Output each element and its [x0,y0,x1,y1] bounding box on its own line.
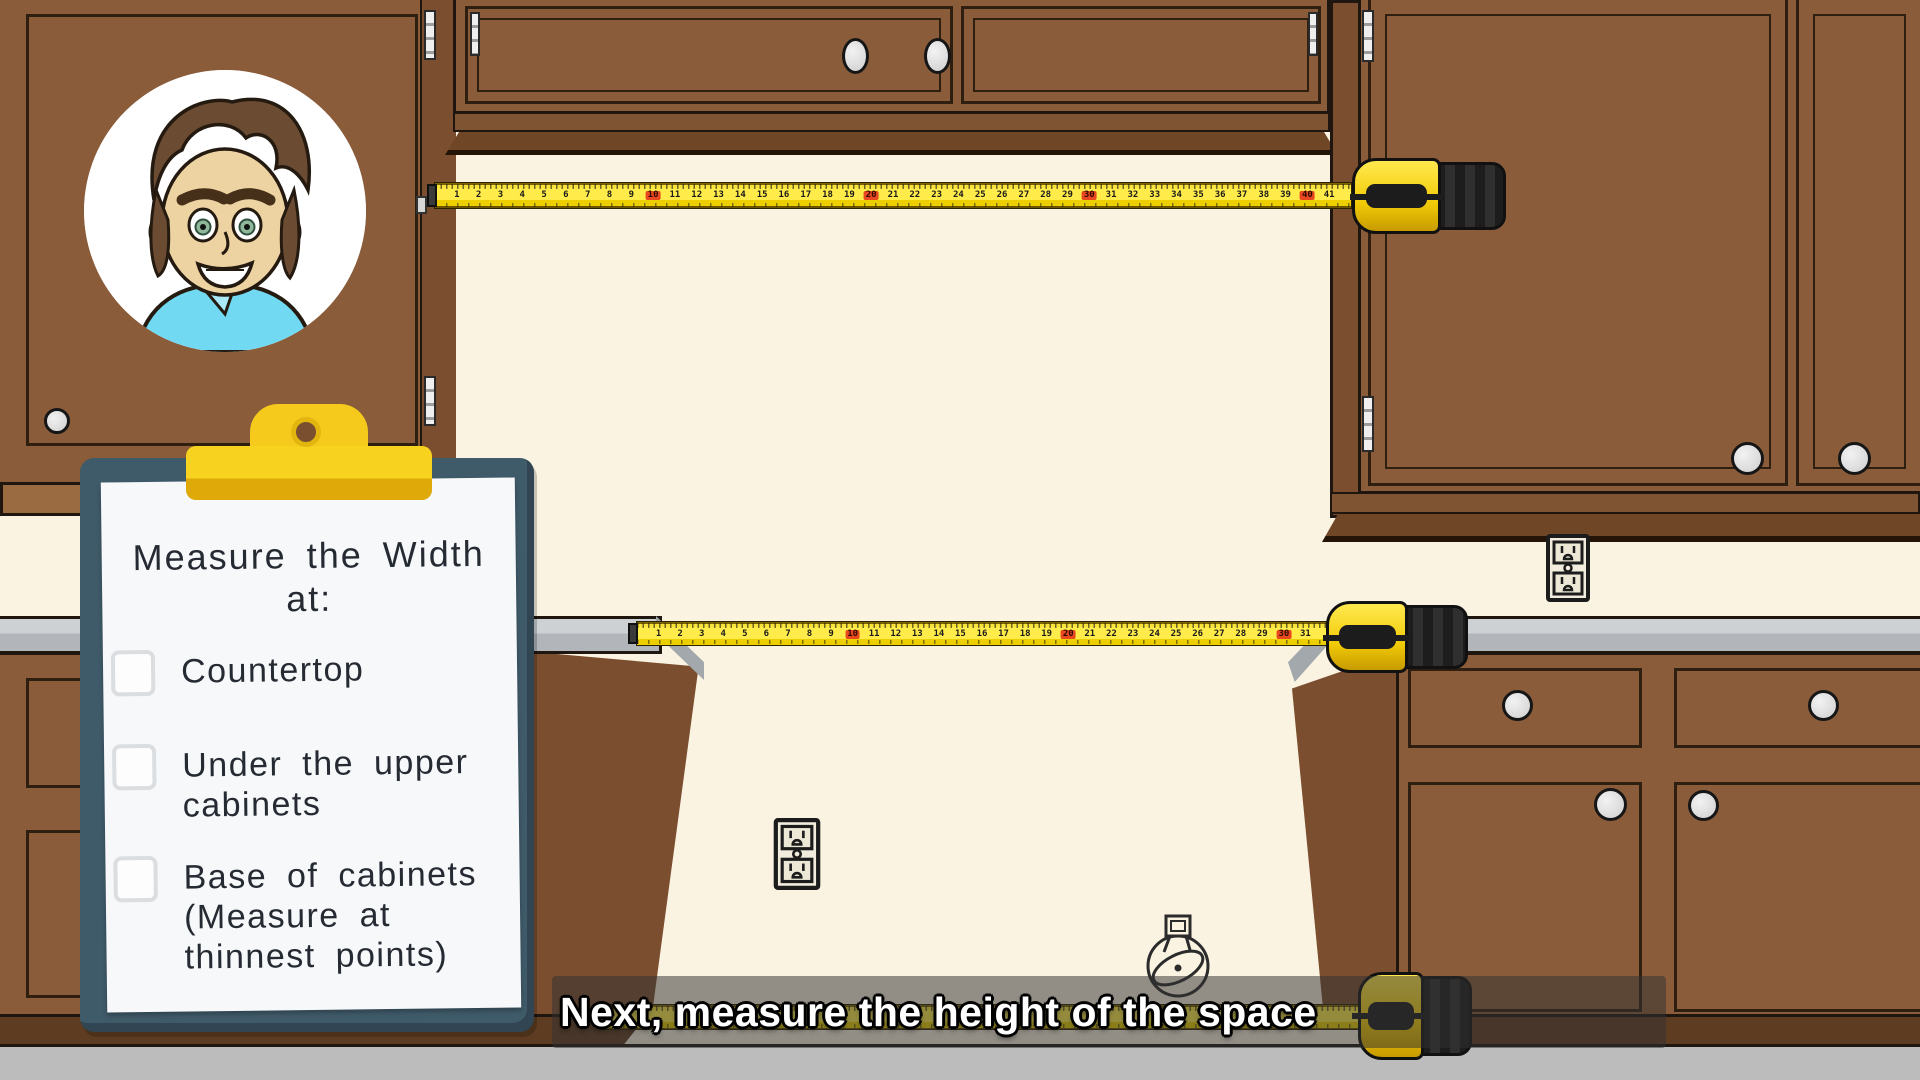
tape-hook [427,184,437,207]
tape-number: 1 [454,191,459,200]
tape-number: 33 [1149,191,1160,200]
kitchen-scene: 1234567891011121314151617181920212223242… [0,0,1920,1080]
tape-number: 34 [1171,191,1182,200]
tape-number: 19 [1041,630,1052,639]
tape-number: 19 [844,191,855,200]
checkbox-under-upper-cabinets[interactable] [112,744,157,791]
tape-number: 9 [828,630,833,639]
base-cabinet-right-drawer [1674,668,1920,748]
tape-measure-body-middle [1326,601,1468,673]
tape-number: 1 [656,630,661,639]
tape-number: 41 [1324,191,1335,200]
tape-hook [628,623,638,644]
tape-number: 22 [909,191,920,200]
tape-number: 10 [646,191,661,200]
hinge-icon [424,376,436,426]
tape-number: 25 [975,191,986,200]
tape-number: 15 [757,191,768,200]
cabinet-knob [1838,442,1871,475]
tape-number: 2 [677,630,682,639]
tape-body-clip [1339,625,1396,648]
door-inner-panel [973,18,1309,92]
door-inner-panel [1813,14,1906,469]
tape-number: 4 [520,191,525,200]
cabinet-knob [1502,690,1533,721]
tape-number: 16 [977,630,988,639]
upper-cabinet-right-door-right [1796,0,1920,486]
power-outlet-icon [1546,534,1590,602]
tape-number: 31 [1300,630,1311,639]
tape-number: 4 [721,630,726,639]
door-inner-panel [477,18,941,92]
clipboard-clip-hole [291,417,321,447]
tape-number: 17 [800,191,811,200]
upper-cabinet-right-door-left [1368,0,1788,486]
upper-cabinet-right-molding [1322,514,1920,542]
checkbox-base-of-cabinets[interactable] [113,856,158,903]
measuring-tape-middle: 1234567891011121314151617181920212223242… [636,621,1328,646]
tape-number: 5 [742,630,747,639]
tape-number: 6 [764,630,769,639]
tape-number: 24 [953,191,964,200]
tape-number: 3 [498,191,503,200]
tape-number: 13 [713,191,724,200]
tape-number: 7 [585,191,590,200]
checklist-item-label: Countertop [181,647,365,691]
tape-number: 5 [541,191,546,200]
tape-number: 29 [1257,630,1268,639]
tape-number: 12 [691,191,702,200]
tape-number: 32 [1127,191,1138,200]
clipboard-clip-bar [186,446,432,500]
tape-number: 21 [888,191,899,200]
tape-number: 26 [1192,630,1203,639]
cabinet-knob [1594,788,1627,821]
subtitle-text: Next, measure the height of the space [560,989,1317,1036]
checklist-item: Under the upper cabinets [112,740,469,827]
tape-number: 28 [1235,630,1246,639]
checklist-item: Countertop [111,647,365,696]
tape-number: 13 [912,630,923,639]
subtitle-bar: Next, measure the height of the space [552,976,1666,1048]
door-inner-panel [1385,14,1771,469]
cabinet-knob [1688,790,1719,821]
tape-body-clip [1366,184,1428,208]
tape-number: 8 [607,191,612,200]
tape-number: 28 [1040,191,1051,200]
tape-number: 20 [864,191,879,200]
tape-number: 39 [1280,191,1291,200]
tape-number: 14 [735,191,746,200]
hinge-icon [1362,10,1374,62]
cabinet-knob [842,38,869,74]
upper-cabinet-right-rail [1330,492,1920,514]
tape-number: 23 [1128,630,1139,639]
power-outlet-icon [773,818,821,890]
upper-cabinet-middle-door-left [465,6,953,104]
tape-number: 7 [785,630,790,639]
presenter-avatar [84,70,366,352]
hinge-icon [470,12,480,56]
tape-number: 22 [1106,630,1117,639]
tape-number: 15 [955,630,966,639]
cabinet-knob [44,408,70,434]
tape-number: 18 [1020,630,1031,639]
floor [0,1044,1920,1080]
tape-measure-body-top [1352,158,1506,234]
tape-number: 8 [807,630,812,639]
hinge-icon [1308,12,1318,56]
tape-number: 9 [629,191,634,200]
cabinet-knob [1731,442,1764,475]
tape-number: 2 [476,191,481,200]
upper-cabinet-middle-door-right [961,6,1321,104]
tape-number: 30 [1082,191,1097,200]
tape-number: 27 [1018,191,1029,200]
clipboard-paper: Measure the Width at: Countertop Under t… [101,477,521,1012]
hinge-icon [1362,396,1374,452]
hinge-icon [424,10,436,60]
checklist-item-label: Base of cabinets (Measure at thinnest po… [183,852,478,978]
cabinet-knob [924,38,951,74]
tape-number: 21 [1084,630,1095,639]
tape-number: 31 [1106,191,1117,200]
tape-number: 14 [933,630,944,639]
tape-number: 3 [699,630,704,639]
upper-cabinet-middle-rail [453,112,1330,132]
cabinet-knob [1808,690,1839,721]
tape-number: 17 [998,630,1009,639]
tape-number: 20 [1061,630,1076,639]
tape-number: 29 [1062,191,1073,200]
tape-number: 24 [1149,630,1160,639]
tape-number: 40 [1300,191,1315,200]
tape-number: 35 [1193,191,1204,200]
tape-number: 11 [869,630,880,639]
tape-number: 23 [931,191,942,200]
tape-number: 26 [997,191,1008,200]
measuring-tape-top: 1234567891011121314151617181920212223242… [434,182,1352,209]
checklist-title: Measure the Width at: [101,531,516,622]
tape-hook-tab [416,196,427,214]
tape-number: 30 [1276,630,1291,639]
tape-number: 12 [890,630,901,639]
tape-number: 18 [822,191,833,200]
tape-number: 36 [1215,191,1226,200]
upper-cabinet-middle-molding [445,132,1338,155]
tape-number: 10 [845,630,860,639]
base-cabinet-right-side [1292,652,1398,1017]
checklist-item: Base of cabinets (Measure at thinnest po… [113,852,478,979]
tape-number: 6 [563,191,568,200]
tape-number: 37 [1237,191,1248,200]
checklist-item-label: Under the upper cabinets [182,740,469,826]
tape-number: 27 [1214,630,1225,639]
tape-number: 25 [1171,630,1182,639]
tape-number: 38 [1258,191,1269,200]
base-cabinet-left-side [534,652,702,1017]
checkbox-countertop[interactable] [111,650,156,697]
tape-number: 16 [779,191,790,200]
tape-number: 11 [669,191,680,200]
